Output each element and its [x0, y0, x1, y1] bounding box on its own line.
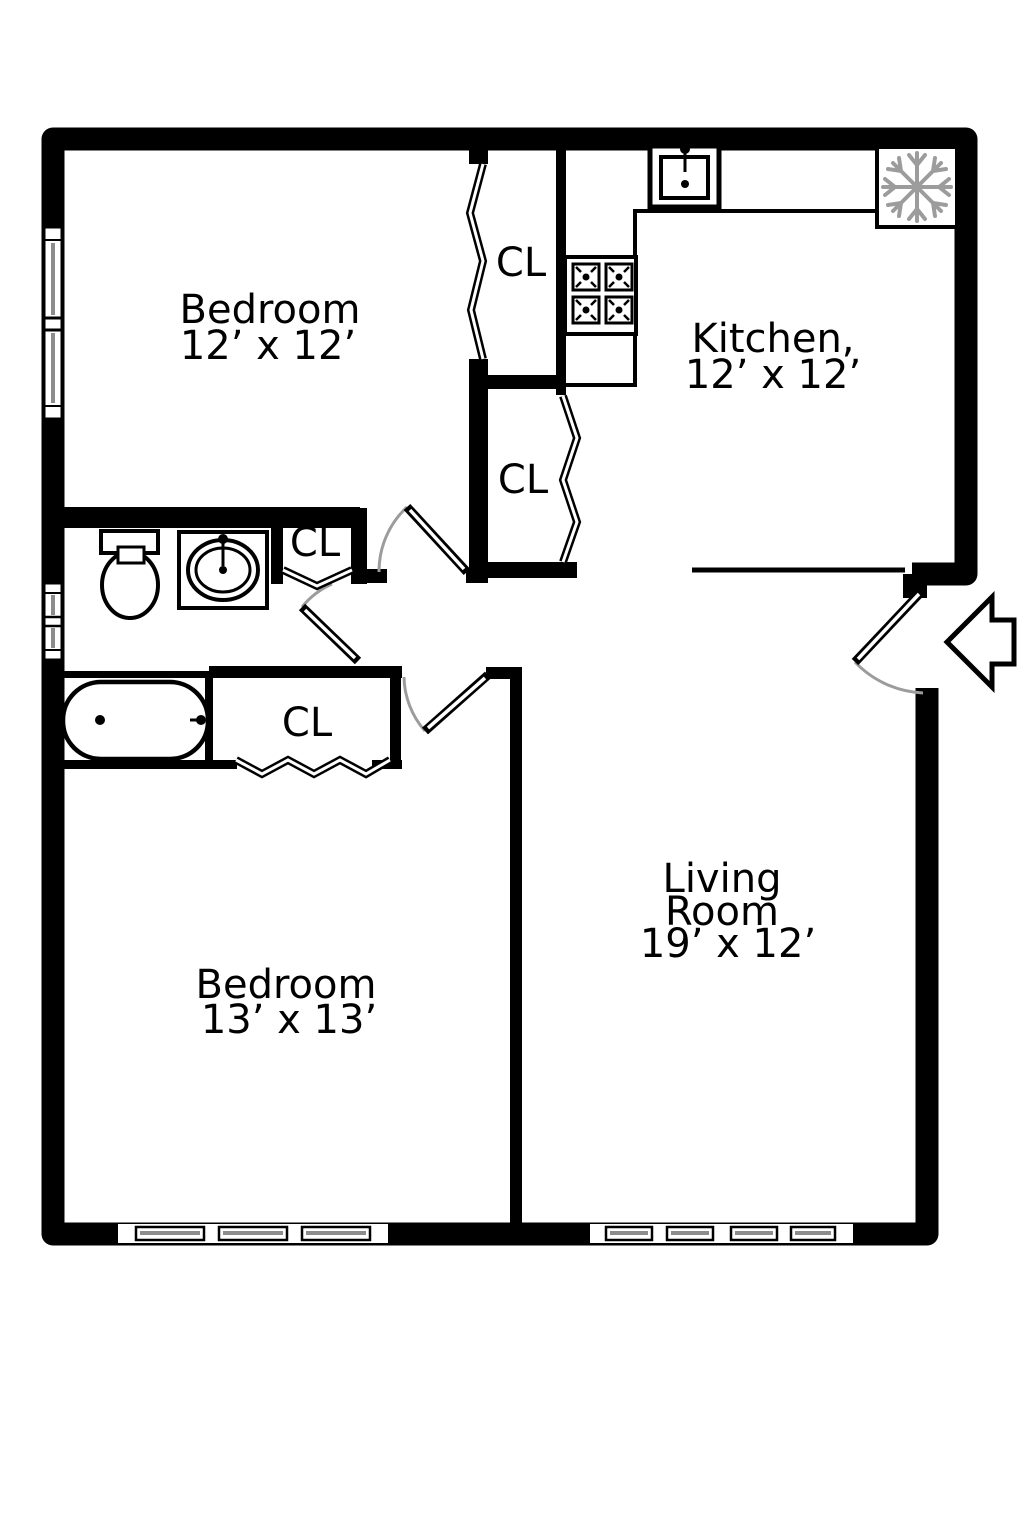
- bath-closet-south-stub: [351, 569, 387, 583]
- vanity-drain: [219, 566, 227, 574]
- stove-burner: [573, 297, 599, 323]
- bathroom-sink: [179, 532, 267, 608]
- entry-door: [855, 591, 923, 693]
- window-living-bottom: [590, 1224, 853, 1243]
- closet-bottom-east-wall: [390, 666, 401, 766]
- window-bedroom1-left: [44, 227, 62, 419]
- living-room-dims: 19’ x 12’: [640, 921, 816, 967]
- entry-arrow-icon: [947, 597, 1014, 687]
- window-bedroom2-bottom: [118, 1224, 388, 1243]
- bathroom-door: [302, 584, 358, 661]
- bathtub-drain: [95, 715, 105, 725]
- closet-mid-accordion-door: [563, 396, 577, 562]
- closet-label-mid: CL: [498, 457, 549, 503]
- tub-bottom-wall: [62, 760, 237, 769]
- stove-burner: [573, 264, 599, 290]
- window-frame: [44, 583, 62, 660]
- door-arc: [404, 677, 425, 731]
- door-leaf-core: [428, 678, 485, 728]
- bathtub-faucet: [196, 715, 206, 725]
- closet-mid-top-wall: [470, 375, 566, 389]
- toilet-flush: [118, 547, 144, 563]
- door-arc: [379, 507, 407, 572]
- bathtub-body: [63, 682, 208, 759]
- closet-label-bottom: CL: [282, 700, 333, 746]
- stove-burner: [606, 297, 632, 323]
- door-arc: [855, 662, 923, 693]
- sink-drain: [681, 180, 689, 188]
- toilet: [101, 531, 158, 618]
- bedroom2-dims: 13’ x 13’: [201, 997, 377, 1043]
- closet-bottom-accordion-door: [236, 760, 390, 774]
- bedroom1-door-stub: [466, 569, 488, 583]
- accordion-core: [236, 760, 390, 774]
- bath-closet-bifold-door: [283, 570, 352, 586]
- bedroom1-east-wall-stub: [469, 150, 488, 164]
- bathroom-south-wall: [209, 666, 402, 678]
- bathtub: [63, 682, 208, 759]
- kitchen-dims: 12’ x 12’: [685, 352, 861, 398]
- snowflake-icon: [883, 153, 951, 221]
- stove-burner: [606, 264, 632, 290]
- tub-top-edge: [64, 671, 209, 678]
- bedroom2-door: [404, 675, 488, 731]
- bedroom1-east-wall: [469, 359, 488, 583]
- door-leaf-core: [305, 610, 355, 658]
- window-bathroom-left: [44, 583, 62, 660]
- bedroom2-east-wall: [510, 667, 522, 1225]
- closet-label-top: CL: [496, 240, 547, 286]
- refrigerator: [877, 147, 957, 227]
- bedroom1-dims: 12’ x 12’: [180, 323, 356, 369]
- bath-closet-west-wall: [271, 508, 283, 584]
- door-leaf-core: [858, 594, 919, 659]
- closet-top-accordion-door: [470, 164, 483, 359]
- bifold-outline: [283, 570, 352, 586]
- closet-label-bath: CL: [290, 520, 341, 566]
- floor-plan: Bedroom 12’ x 12’ Kitchen, 12’ x 12’ Liv…: [0, 0, 1024, 1536]
- stove: [565, 257, 636, 334]
- kitchen-sink: [650, 144, 719, 207]
- bedroom1-door: [379, 507, 467, 572]
- door-leaf-core: [410, 510, 464, 569]
